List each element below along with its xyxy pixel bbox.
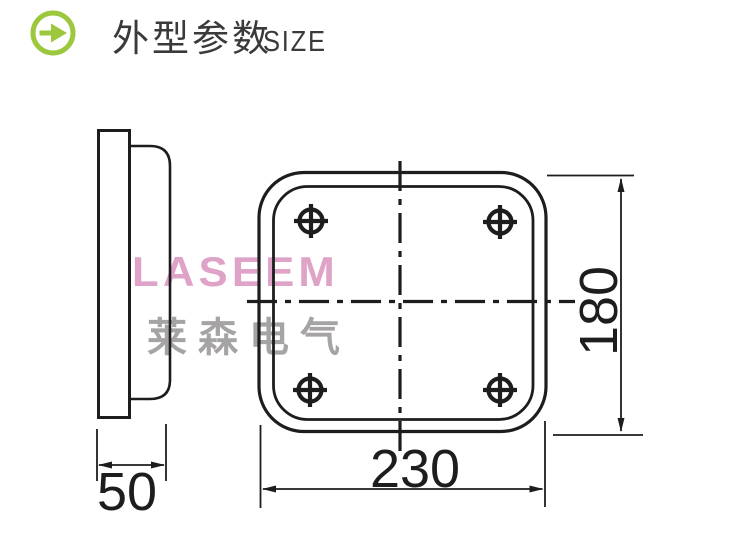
mounting-hole <box>483 205 517 239</box>
mounting-hole <box>293 373 327 407</box>
section-header: 外型参数 SIZE <box>0 0 750 70</box>
front-view <box>247 161 575 451</box>
arrow-right-circle-icon <box>30 10 76 56</box>
dimension-height: 180 <box>547 176 643 436</box>
side-view-back-plate <box>99 131 130 418</box>
dimension-depth-value: 50 <box>97 462 157 522</box>
section-title-zh: 外型参数 <box>112 19 272 59</box>
mounting-hole <box>483 373 517 407</box>
dimension-depth: 50 <box>97 424 166 522</box>
section-title-en: SIZE <box>263 27 327 57</box>
dimension-width-value: 230 <box>370 439 460 499</box>
dimension-height-value: 180 <box>569 266 629 356</box>
side-view <box>99 131 171 418</box>
mounting-hole <box>294 204 328 238</box>
dimension-width: 230 <box>261 421 546 508</box>
page: LASEEM 莱森电气 50 <box>0 0 750 554</box>
side-view-body <box>130 146 170 399</box>
technical-drawing: 50 23 <box>0 0 750 554</box>
